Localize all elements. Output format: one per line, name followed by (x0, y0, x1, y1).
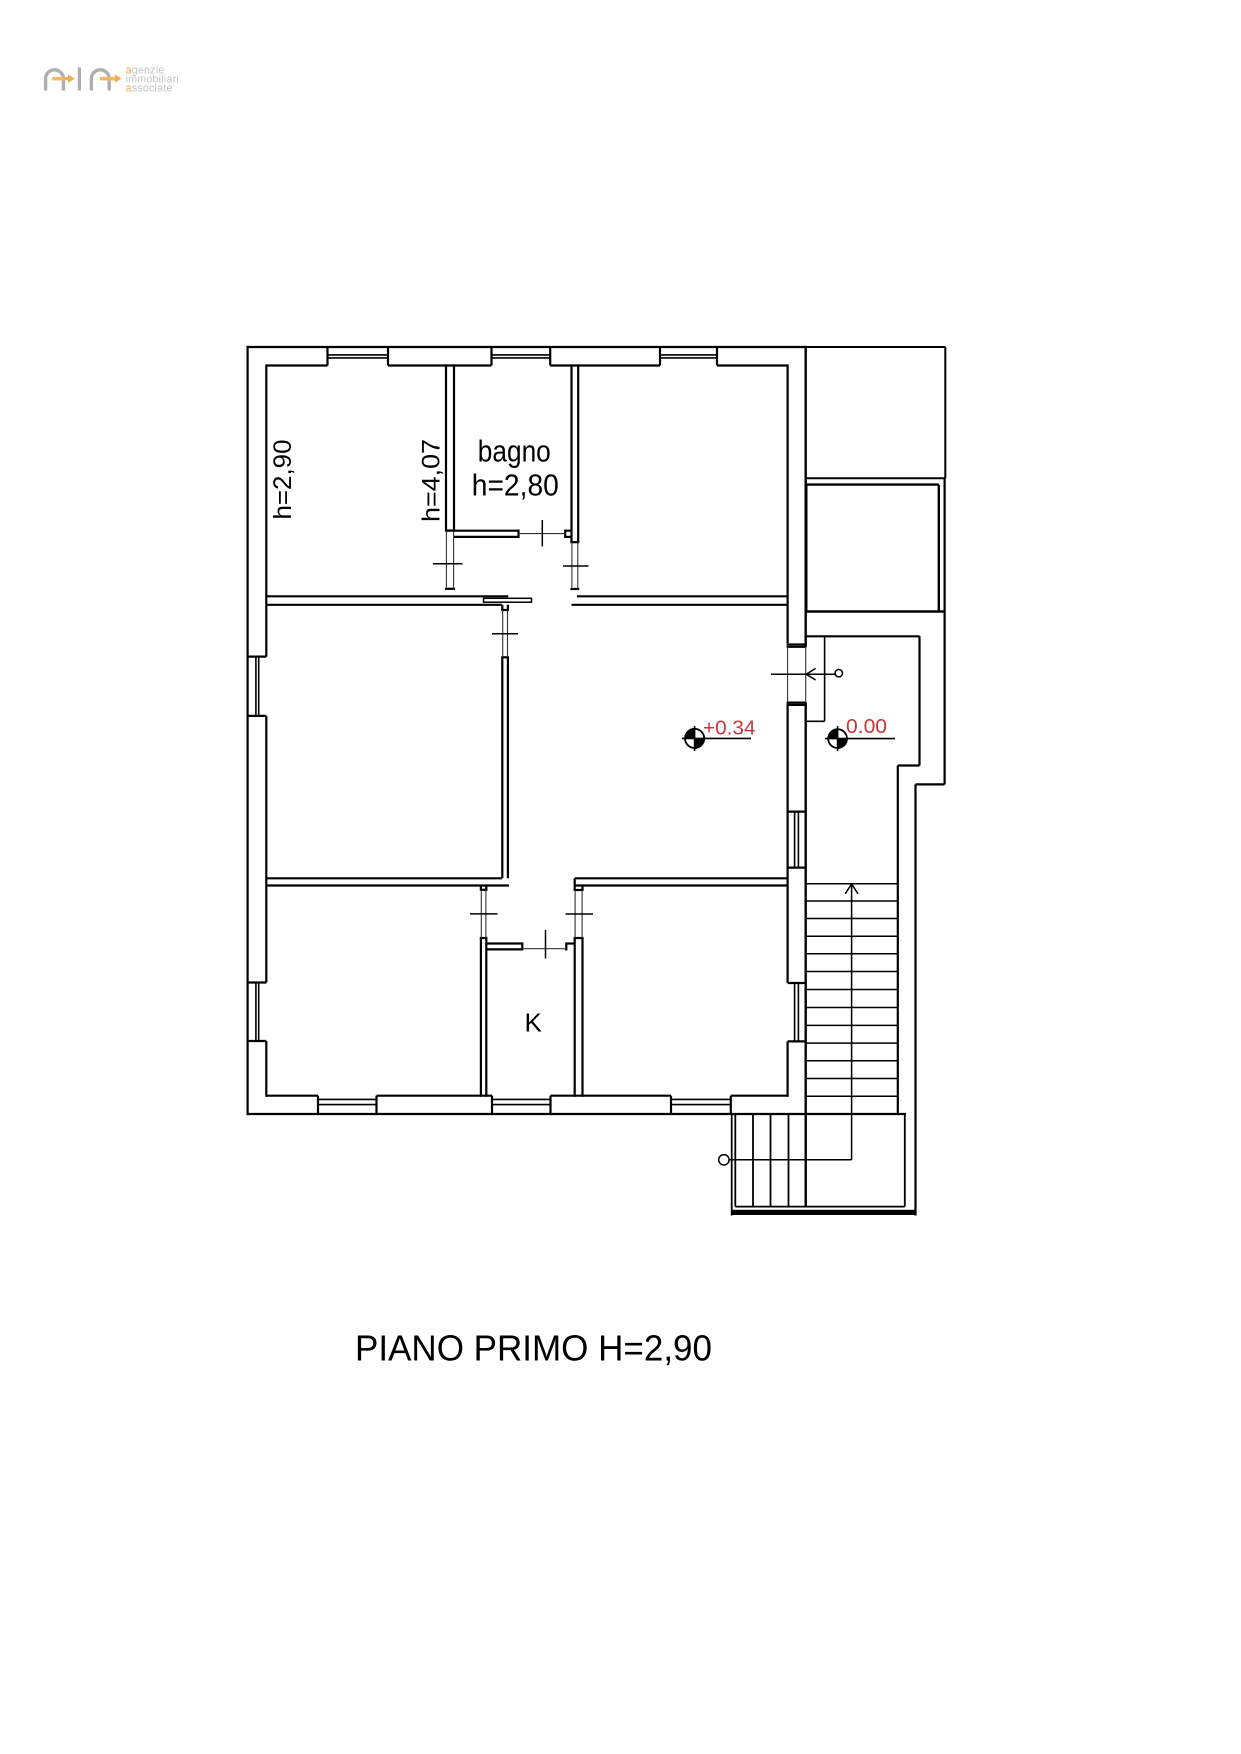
svg-text:associate: associate (126, 83, 173, 95)
svg-text:+0.34: +0.34 (703, 717, 756, 740)
svg-text:PIANO PRIMO H=2,90: PIANO PRIMO H=2,90 (355, 1328, 712, 1369)
svg-text:bagno: bagno (478, 434, 551, 469)
svg-text:K: K (525, 1008, 543, 1038)
svg-text:0.00: 0.00 (846, 715, 887, 738)
svg-text:h=4,07: h=4,07 (418, 439, 446, 522)
svg-text:h=2,80: h=2,80 (472, 468, 559, 503)
svg-text:h=2,90: h=2,90 (269, 440, 297, 520)
